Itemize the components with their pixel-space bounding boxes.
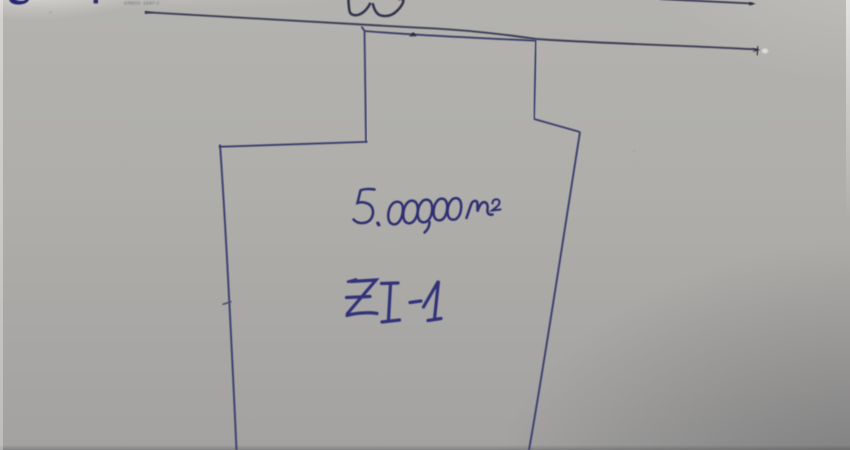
svg-text:CRECI- 1247-J: CRECI- 1247-J <box>124 1 160 7</box>
